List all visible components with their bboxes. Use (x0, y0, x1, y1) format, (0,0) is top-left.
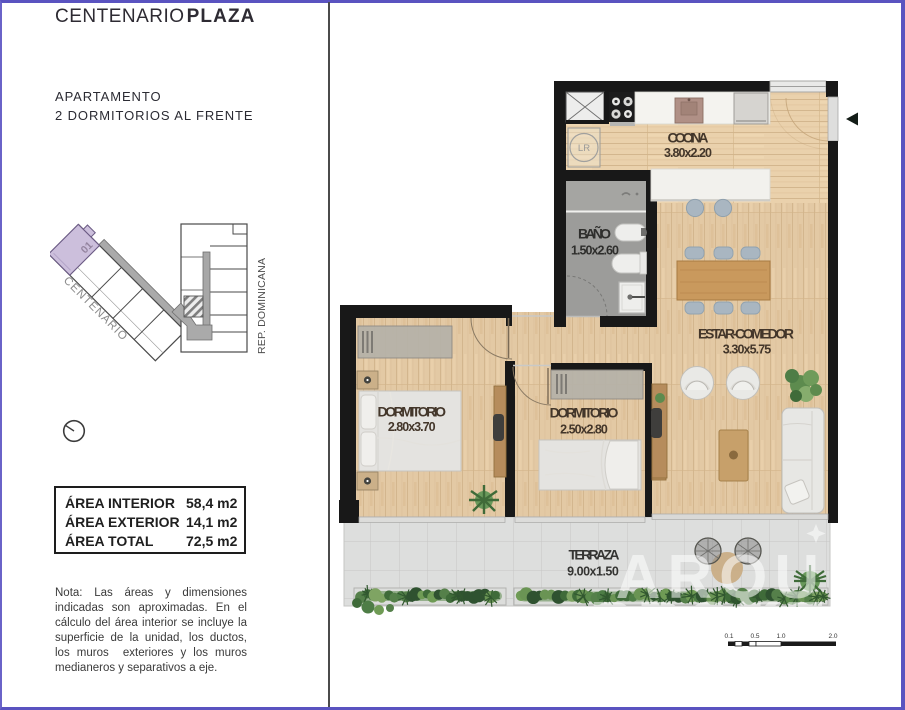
svg-text:LR: LR (578, 143, 590, 154)
svg-text:COCINA: COCINA (668, 130, 709, 146)
svg-text:1.0: 1.0 (776, 633, 785, 640)
svg-text:3.80x2.20: 3.80x2.20 (664, 146, 712, 160)
svg-text:DORMITORIO: DORMITORIO (550, 405, 619, 421)
svg-text:REP. DOMINICANA: REP. DOMINICANA (256, 258, 268, 354)
svg-text:1.50x2.60: 1.50x2.60 (571, 244, 619, 258)
svg-text:BROKER: BROKER (590, 590, 877, 659)
svg-text:2.0: 2.0 (828, 633, 837, 640)
svg-text:TERRAZA: TERRAZA (569, 547, 620, 563)
svg-text:ESTAR-COMEDOR: ESTAR-COMEDOR (698, 326, 794, 342)
svg-text:0.5: 0.5 (750, 633, 759, 640)
svg-text:2.50x2.80: 2.50x2.80 (560, 423, 608, 437)
svg-text:9.00x1.50: 9.00x1.50 (567, 564, 619, 578)
svg-text:2.80x3.70: 2.80x3.70 (388, 420, 436, 434)
svg-text:0.1: 0.1 (724, 633, 733, 640)
svg-text:3.30x5.75: 3.30x5.75 (723, 343, 772, 357)
svg-text:DORMITORIO: DORMITORIO (378, 404, 447, 420)
svg-text:BAÑO: BAÑO (578, 225, 611, 242)
